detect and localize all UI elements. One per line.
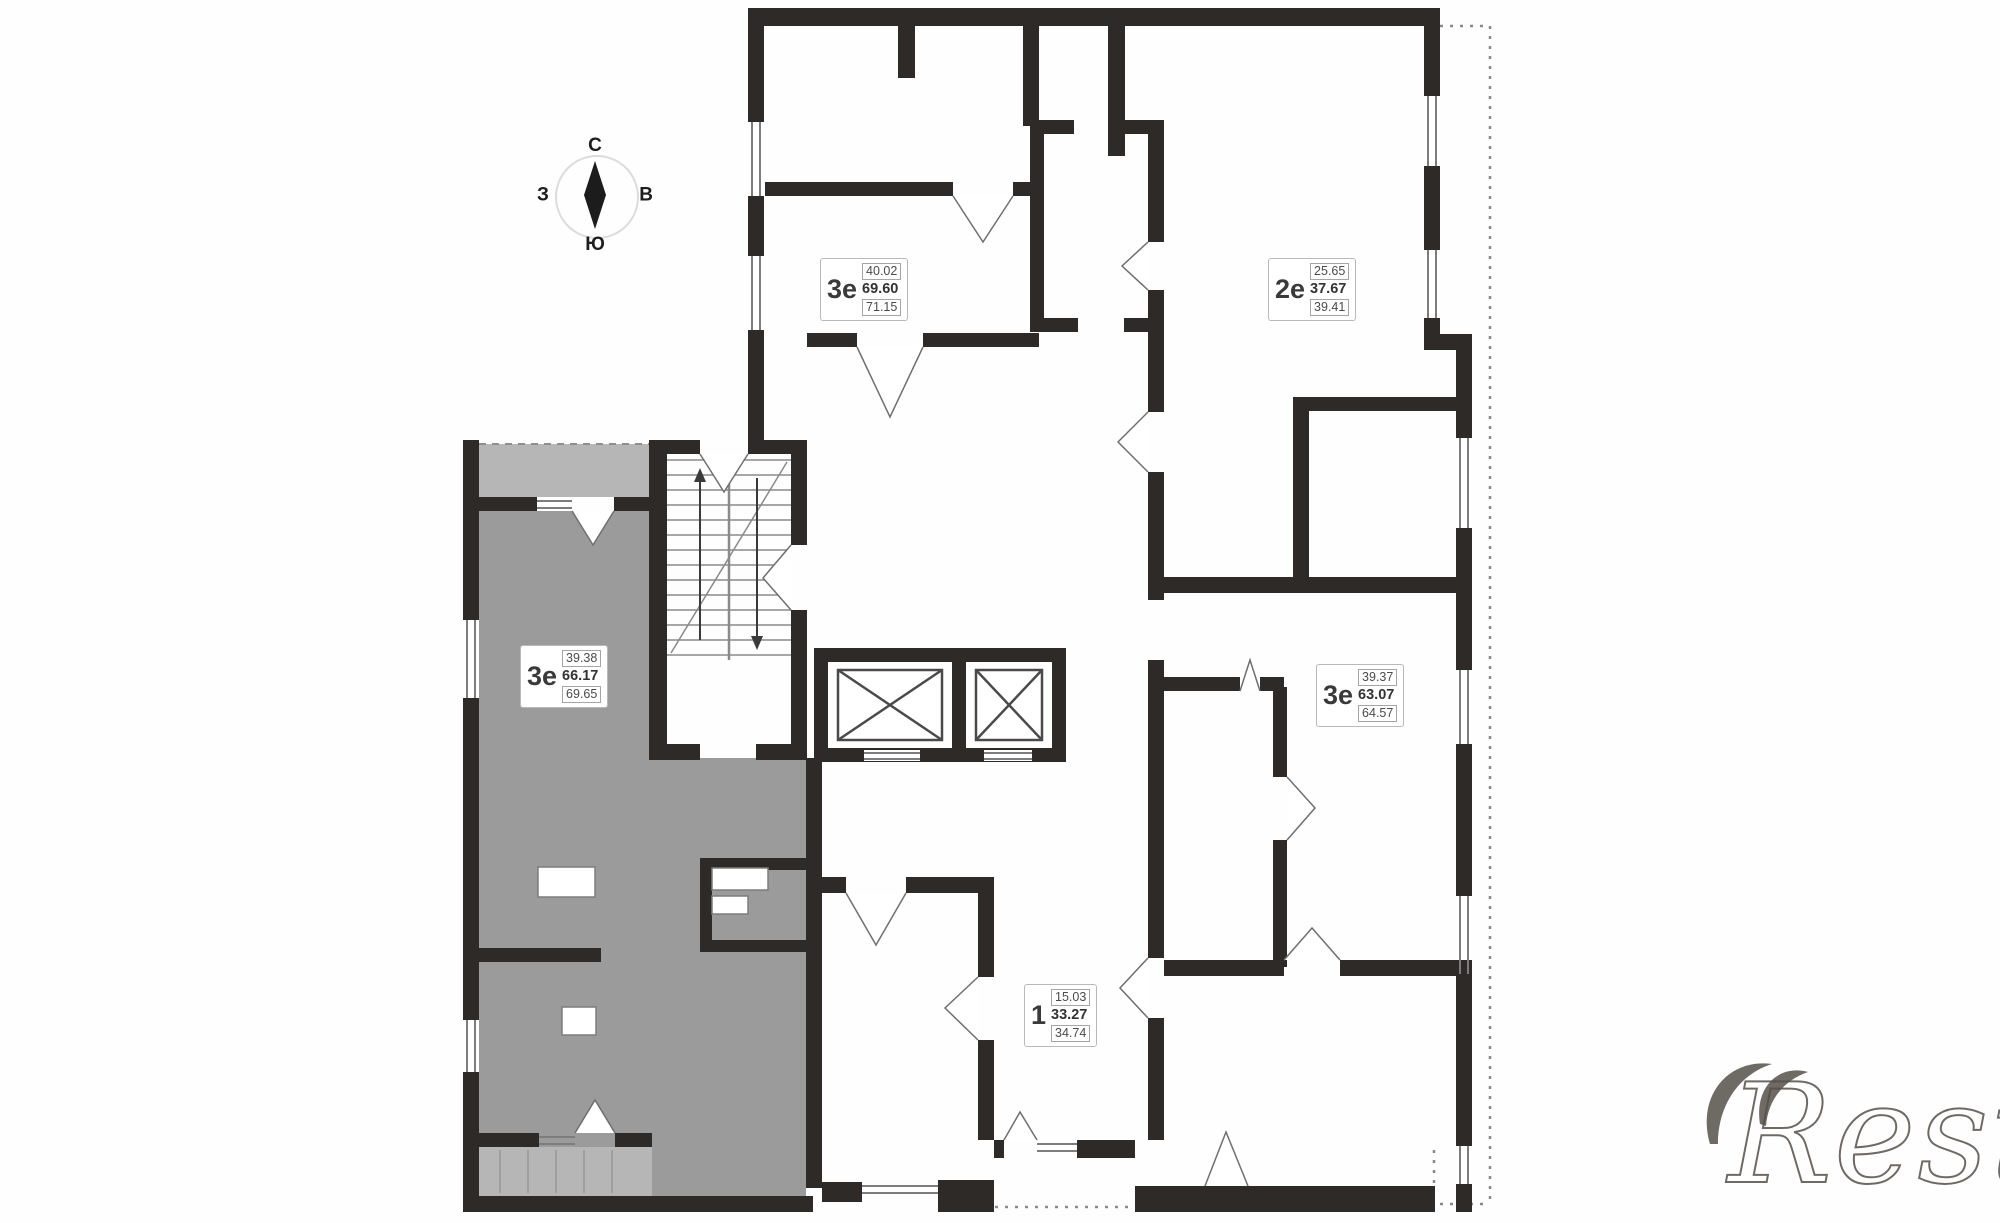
total-area: 63.07 (1358, 688, 1394, 703)
total-area: 33.27 (1051, 1008, 1087, 1023)
living-area: 40.02 (862, 263, 901, 280)
apartment-label-highlighted[interactable]: 3е 39.38 66.17 69.65 (520, 645, 608, 708)
total-area-with-balcony: 64.57 (1358, 705, 1397, 722)
apartment-type: 2е (1275, 276, 1305, 303)
compass-east-label: В (639, 186, 653, 205)
living-area: 39.38 (562, 650, 601, 667)
elevator-shafts (838, 670, 1042, 740)
apartment-label-right[interactable]: 3е 39.37 63.07 64.57 (1316, 664, 1404, 727)
compass-needle (549, 149, 641, 241)
total-area: 69.60 (862, 282, 898, 297)
total-area: 37.67 (1310, 282, 1346, 297)
total-area-with-balcony: 71.15 (862, 299, 901, 316)
floor-plan-page: С Ю З В 3е 40.02 69.60 71.15 2е 25.65 37… (0, 0, 2000, 1223)
total-area-with-balcony: 69.65 (562, 686, 601, 703)
living-area: 15.03 (1051, 989, 1090, 1006)
apartment-type: 3е (827, 276, 857, 303)
floor-plan-drawing (0, 0, 2000, 1223)
compass-west-label: З (537, 186, 549, 205)
total-area-with-balcony: 39.41 (1310, 299, 1349, 316)
apartment-label-bottom[interactable]: 1 15.03 33.27 34.74 (1024, 984, 1097, 1047)
living-area: 25.65 (1310, 263, 1349, 280)
apartment-label-top-right[interactable]: 2е 25.65 37.67 39.41 (1268, 258, 1356, 321)
apartment-type: 1 (1031, 1002, 1046, 1029)
stairs (667, 455, 791, 660)
total-area-with-balcony: 34.74 (1051, 1025, 1090, 1042)
apartment-type: 3е (1323, 682, 1353, 709)
apartment-label-top-left[interactable]: 3е 40.02 69.60 71.15 (820, 258, 908, 321)
total-area: 66.17 (562, 669, 598, 684)
living-area: 39.37 (1358, 669, 1397, 686)
compass-rose: С Ю З В (549, 149, 641, 241)
apartment-type: 3е (527, 663, 557, 690)
